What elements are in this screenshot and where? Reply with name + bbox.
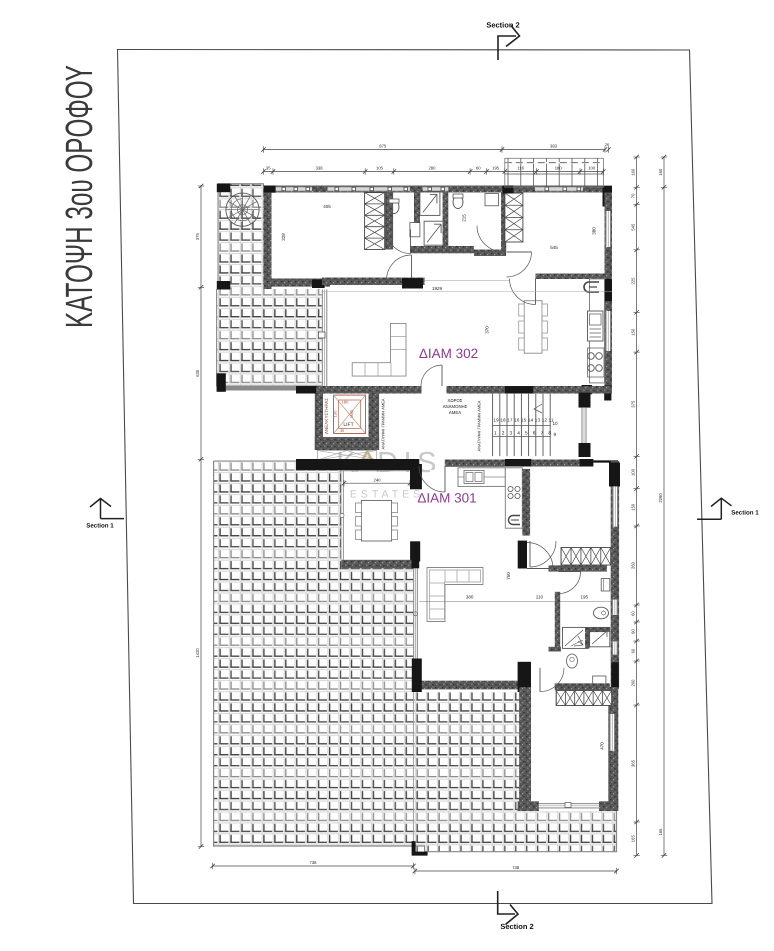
svg-text:ΔΙΑΜ 302: ΔΙΑΜ 302 xyxy=(419,346,478,361)
svg-text:100: 100 xyxy=(631,468,636,476)
svg-text:130: 130 xyxy=(333,410,338,417)
svg-text:10: 10 xyxy=(553,421,559,426)
svg-text:116: 116 xyxy=(517,166,524,171)
svg-text:ESTATES: ESTATES xyxy=(350,489,424,501)
svg-text:738: 738 xyxy=(310,860,318,865)
svg-text:9: 9 xyxy=(554,432,557,437)
svg-text:LIFT: LIFT xyxy=(343,422,353,428)
svg-text:60: 60 xyxy=(631,611,636,616)
svg-text:1 2 3 4 5 6 7 8: 1 2 3 4 5 6 7 8 xyxy=(494,431,551,437)
svg-text:165: 165 xyxy=(631,835,636,843)
svg-text:200: 200 xyxy=(631,679,636,687)
svg-text:90: 90 xyxy=(631,629,636,634)
svg-text:328: 328 xyxy=(281,233,286,241)
svg-text:Section 2: Section 2 xyxy=(486,21,519,30)
svg-text:380: 380 xyxy=(466,594,474,599)
svg-text:1420: 1420 xyxy=(195,648,200,658)
svg-text:Section 2: Section 2 xyxy=(500,922,533,931)
svg-text:383: 383 xyxy=(550,144,558,149)
svg-text:545: 545 xyxy=(550,245,558,250)
svg-text:470: 470 xyxy=(600,742,605,750)
svg-text:ΑΜΕΑ: ΑΜΕΑ xyxy=(449,410,461,415)
svg-text:160: 160 xyxy=(631,168,636,176)
svg-text:630: 630 xyxy=(195,369,200,377)
svg-text:26: 26 xyxy=(605,143,609,147)
svg-text:2290: 2290 xyxy=(658,493,663,503)
svg-text:195: 195 xyxy=(581,594,589,599)
svg-text:60: 60 xyxy=(476,166,481,171)
svg-text:215: 215 xyxy=(462,214,467,222)
svg-text:19 18 17 16 15 14 13 12 11: 19 18 17 16 15 14 13 12 11 xyxy=(494,418,555,423)
svg-text:1929: 1929 xyxy=(432,286,443,291)
svg-text:545: 545 xyxy=(631,223,636,231)
svg-text:100: 100 xyxy=(588,166,596,171)
svg-text:750: 750 xyxy=(506,572,511,580)
svg-text:70: 70 xyxy=(631,193,636,198)
svg-text:ΑΝΑΓΛΥΦΗ ΓΡΑΜΜΗ ΑΜΕΑ: ΑΝΑΓΛΥΦΗ ΓΡΑΜΜΗ ΑΜΕΑ xyxy=(477,400,482,451)
svg-text:338: 338 xyxy=(316,166,324,171)
svg-text:Μ80: Μ80 xyxy=(349,409,354,418)
svg-text:405: 405 xyxy=(323,204,331,209)
svg-text:160: 160 xyxy=(555,166,563,171)
svg-text:375: 375 xyxy=(631,400,636,408)
svg-text:165: 165 xyxy=(658,828,663,836)
svg-text:ΑΝΑΜΟΝΗΣ: ΑΝΑΜΟΝΗΣ xyxy=(443,404,468,409)
svg-text:150: 150 xyxy=(631,503,636,511)
svg-text:ΑΝΑΓΛΥΦΗ ΓΡΑΜΜΗ ΑΜΕΑ: ΑΝΑΓΛΥΦΗ ΓΡΑΜΜΗ ΑΜΕΑ xyxy=(381,398,386,449)
svg-text:Section 1: Section 1 xyxy=(731,510,759,517)
svg-text:35: 35 xyxy=(266,166,271,171)
svg-text:365: 365 xyxy=(631,759,636,767)
svg-text:748: 748 xyxy=(512,865,520,870)
svg-text:180: 180 xyxy=(342,400,349,405)
svg-text:375: 375 xyxy=(195,232,200,240)
svg-text:875: 875 xyxy=(379,144,387,149)
svg-text:195: 195 xyxy=(492,166,500,171)
svg-text:240: 240 xyxy=(374,478,382,483)
svg-text:Section 1: Section 1 xyxy=(86,523,114,530)
svg-text:260: 260 xyxy=(631,561,636,569)
svg-text:370: 370 xyxy=(485,326,490,334)
svg-text:110: 110 xyxy=(536,594,544,599)
svg-text:ΚΑΤΟΨΗ 3ου ΟΡΟΦΟΥ: ΚΑΤΟΨΗ 3ου ΟΡΟΦΟΥ xyxy=(59,65,101,328)
svg-text:ΑΝΕΛΚΥΣΤΗΡΑΣ: ΑΝΕΛΚΥΣΤΗΡΑΣ xyxy=(324,398,329,434)
svg-text:160: 160 xyxy=(658,168,663,176)
svg-text:225: 225 xyxy=(631,277,636,285)
svg-text:150: 150 xyxy=(631,328,636,336)
svg-text:ΔΙΑΜ 301: ΔΙΑΜ 301 xyxy=(417,491,476,506)
svg-text:280: 280 xyxy=(428,166,436,171)
svg-text:45: 45 xyxy=(340,428,345,433)
svg-text:105: 105 xyxy=(376,166,384,171)
svg-text:380: 380 xyxy=(592,227,597,235)
svg-text:ΧΩΡΟΣ: ΧΩΡΟΣ xyxy=(448,398,463,403)
svg-text:60: 60 xyxy=(631,648,636,653)
